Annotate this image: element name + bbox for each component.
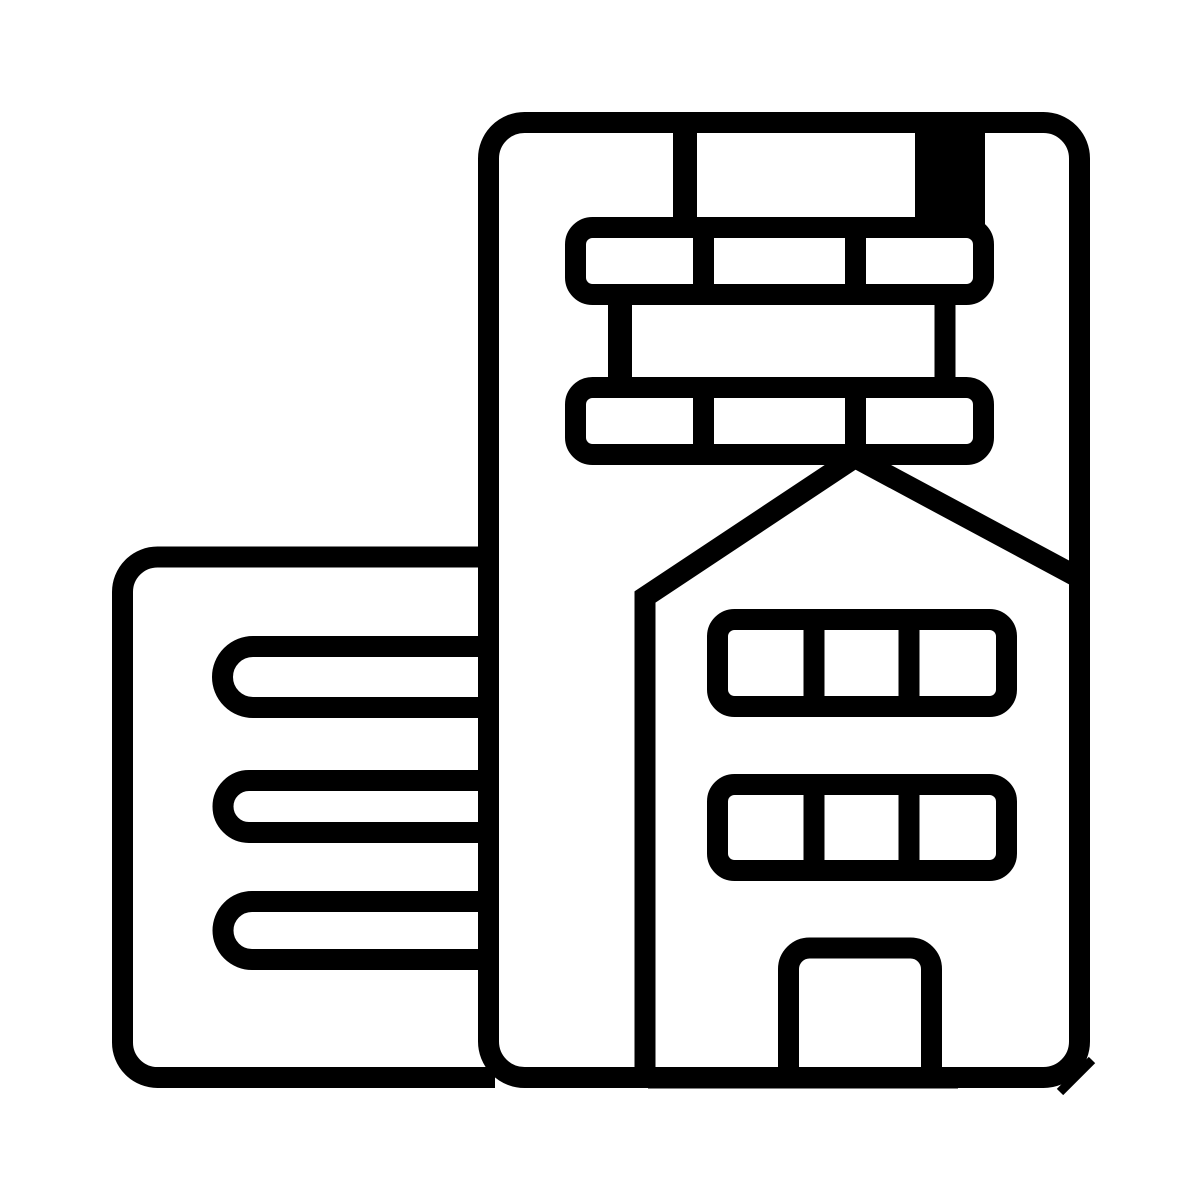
icon-background <box>0 0 1200 1198</box>
city-buildings-icon: City buildings icon <box>0 0 1200 1198</box>
icon-canvas: City buildings icon <box>0 0 1200 1198</box>
rooftop-block <box>915 126 985 229</box>
